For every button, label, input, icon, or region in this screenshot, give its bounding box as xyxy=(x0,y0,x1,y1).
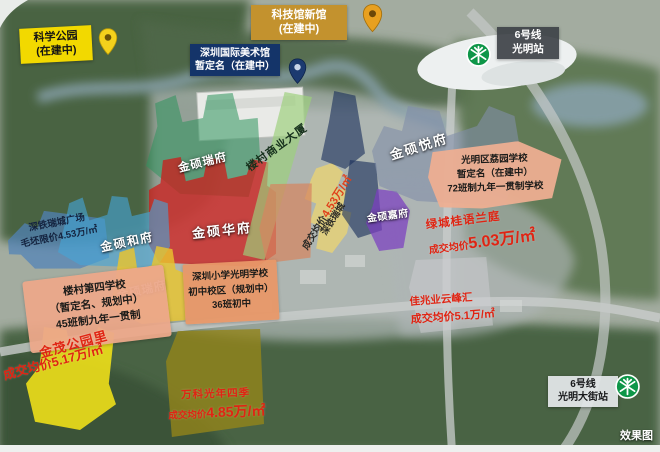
badge-line1: 6号线 xyxy=(548,378,618,391)
aerial-render-map: 金硕瑞府 金硕华府 金硕和府 楼村商业大厦 深铁瑞城广场 毛坯限价4.53万/㎡… xyxy=(0,0,660,452)
watermark: 效果图 xyxy=(620,431,653,442)
metro-logo-icon xyxy=(466,42,491,67)
price-prefix: 成交均价 xyxy=(168,409,206,421)
badge-line2: 暂定名（在建中） xyxy=(192,60,278,73)
badge-line2: (在建中) xyxy=(253,22,345,36)
badge-line2: 光明站 xyxy=(497,43,559,57)
price-value: 4.85万/㎡ xyxy=(206,402,266,420)
metro-logo-icon xyxy=(615,374,640,399)
label-jiazhaoye: 佳兆业云峰汇 成交均价5.1万/㎡ xyxy=(409,288,495,327)
art-museum-badge: 深圳国际美术馆 暂定名（在建中） xyxy=(190,44,280,76)
metro-guangming-badge: 6号线 光明站 xyxy=(497,27,559,59)
badge-line2: 光明大街站 xyxy=(548,391,618,404)
science-park-badge: 科学公园 (在建中) xyxy=(19,25,93,63)
card-shenzhen-primary: 深圳小学光明学校 初中校区（规划中） 36班初中 xyxy=(182,260,279,325)
science-museum-pin-icon xyxy=(362,3,383,34)
badge-line1: 科技馆新馆 xyxy=(253,8,345,22)
science-museum-badge: 科技馆新馆 (在建中) xyxy=(251,5,347,40)
badge-line1: 深圳国际美术馆 xyxy=(192,47,278,60)
metro-guangming-street-badge: 6号线 光明大街站 xyxy=(548,376,618,407)
badge-line2: (在建中) xyxy=(22,43,91,61)
art-museum-pin-icon xyxy=(288,57,307,86)
label-vanke: 万科光年四季 成交均价4.85万/㎡ xyxy=(167,384,264,423)
price-prefix: 成交均价 xyxy=(428,241,469,257)
badge-line1: 6号线 xyxy=(497,29,559,43)
project-price: 成交均价4.85万/㎡ xyxy=(168,400,265,423)
science-park-pin-icon xyxy=(98,27,118,57)
